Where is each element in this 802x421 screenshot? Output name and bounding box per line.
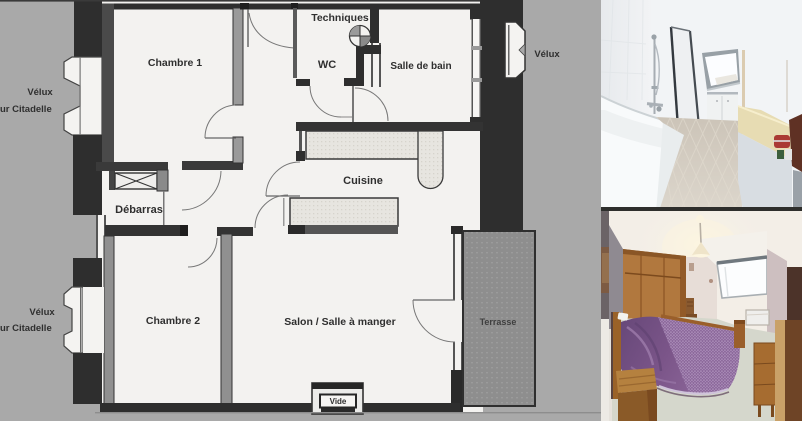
svg-text:Débarras: Débarras: [115, 204, 163, 216]
svg-text:Vide: Vide: [330, 397, 347, 406]
svg-text:Vélux: Vélux: [534, 49, 560, 60]
svg-text:Chambre 2: Chambre 2: [146, 315, 200, 327]
svg-text:Cuisine: Cuisine: [343, 175, 383, 187]
svg-text:Terrasse: Terrasse: [480, 317, 517, 327]
svg-text:Salle de bain: Salle de bain: [390, 61, 451, 72]
svg-text:Techniques: Techniques: [311, 12, 369, 24]
svg-text:Chambre 1: Chambre 1: [148, 57, 202, 69]
svg-text:Vélux: Vélux: [29, 307, 55, 318]
svg-text:Salon / Salle à manger: Salon / Salle à manger: [284, 316, 395, 328]
svg-text:ur Citadelle: ur Citadelle: [0, 104, 52, 115]
svg-text:WC: WC: [318, 59, 336, 71]
svg-text:Vélux: Vélux: [27, 87, 53, 98]
svg-text:ur Citadelle: ur Citadelle: [0, 323, 52, 334]
